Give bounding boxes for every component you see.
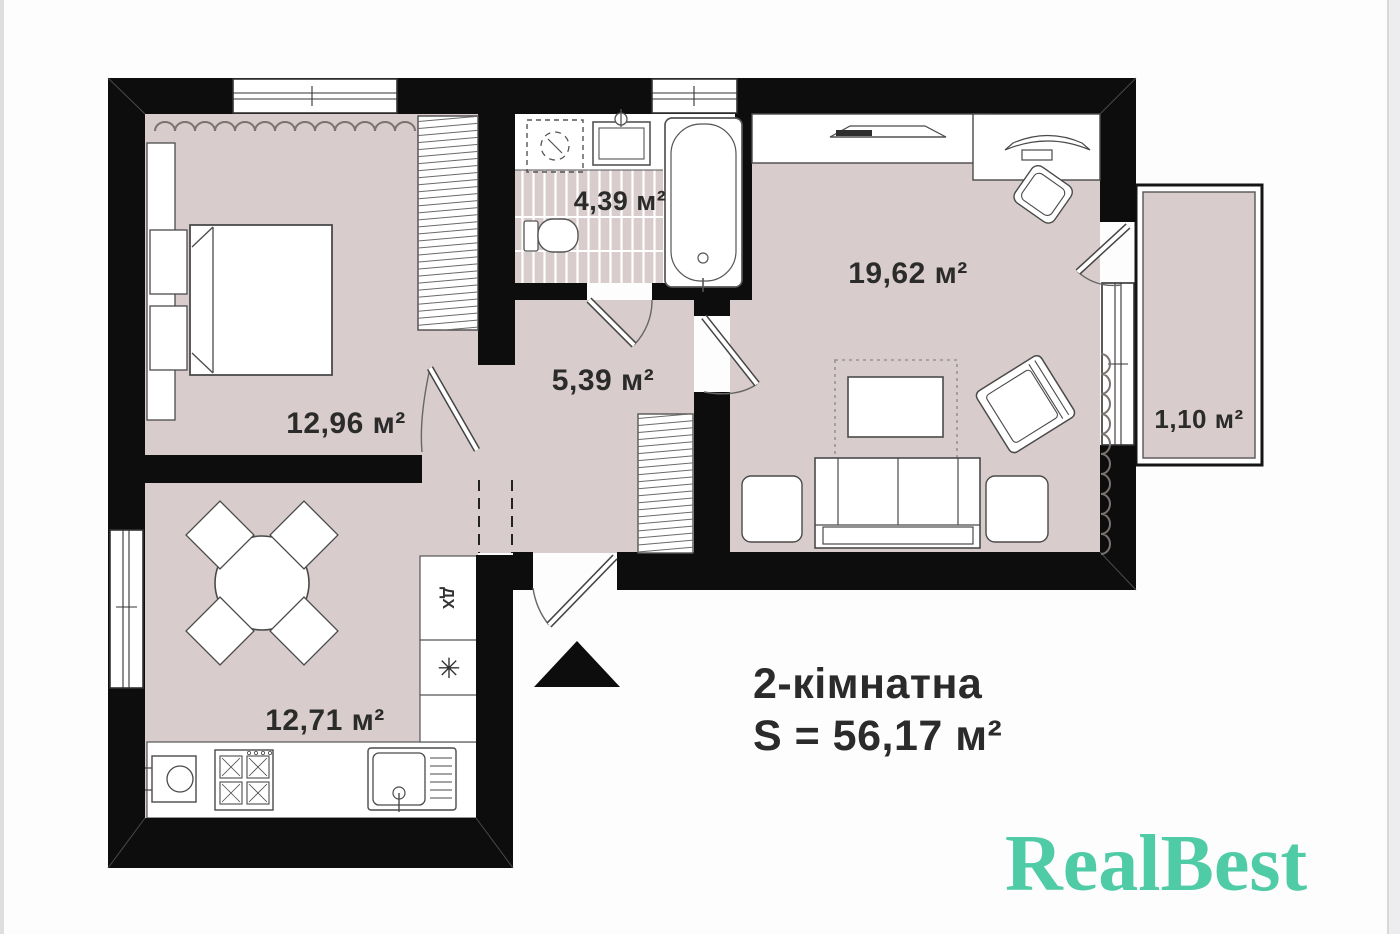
tv-console-icon [752, 114, 990, 163]
stove-icon [215, 750, 273, 810]
plan-title: 2-кімнатна S = 56,17 м² [753, 658, 1002, 762]
bed-icon [190, 225, 332, 375]
bedroom-window-icon [233, 79, 397, 113]
floorplan-page: 12,96 м² 4,39 м² 5,39 м² 19,62 м² 12,71 … [0, 0, 1400, 934]
coffee-table-icon [848, 377, 943, 437]
balcony-area-label: 1,10 м² [1154, 404, 1243, 434]
bedroom-area-label: 12,96 м² [286, 407, 406, 440]
page-edge-right [1387, 0, 1400, 934]
hallway-area-label: 5,39 м² [552, 364, 654, 397]
small-appliance-icon [145, 756, 196, 802]
freezer-snowflake-icon: ✳ [437, 653, 460, 684]
side-table-icon [742, 476, 802, 542]
entrance-door-icon [533, 557, 615, 625]
plan-title-type: 2-кімнатна [753, 658, 1002, 710]
toilet-icon [524, 219, 578, 252]
kitchen-window-icon [110, 530, 143, 688]
floor-plan-drawing: 12,96 м² 4,39 м² 5,39 м² 19,62 м² 12,71 … [0, 0, 1400, 934]
tv-icon [836, 130, 872, 136]
sofa-icon [815, 458, 980, 548]
nightstand-icon [150, 306, 187, 370]
fridge-label: ДХ [439, 587, 456, 609]
living-room-area-label: 19,62 м² [848, 257, 968, 290]
bathroom-window-icon [652, 79, 737, 113]
hall-wardrobe-icon [638, 414, 693, 553]
kitchen-sink-icon [368, 748, 456, 812]
entrance-arrow-icon [534, 641, 620, 687]
kitchen-area-label: 12,71 м² [265, 704, 385, 737]
living-room-window-icon [1102, 283, 1134, 445]
page-edge-left [0, 0, 4, 934]
nightstand-icon [150, 230, 187, 294]
side-table-icon [986, 476, 1048, 542]
bathtub-icon [665, 118, 742, 292]
bathroom-area-label: 4,39 м² [574, 186, 667, 216]
plan-title-area: S = 56,17 м² [753, 710, 1002, 762]
wardrobe-icon [418, 116, 478, 330]
realbest-logo: RealBest [1005, 822, 1307, 906]
